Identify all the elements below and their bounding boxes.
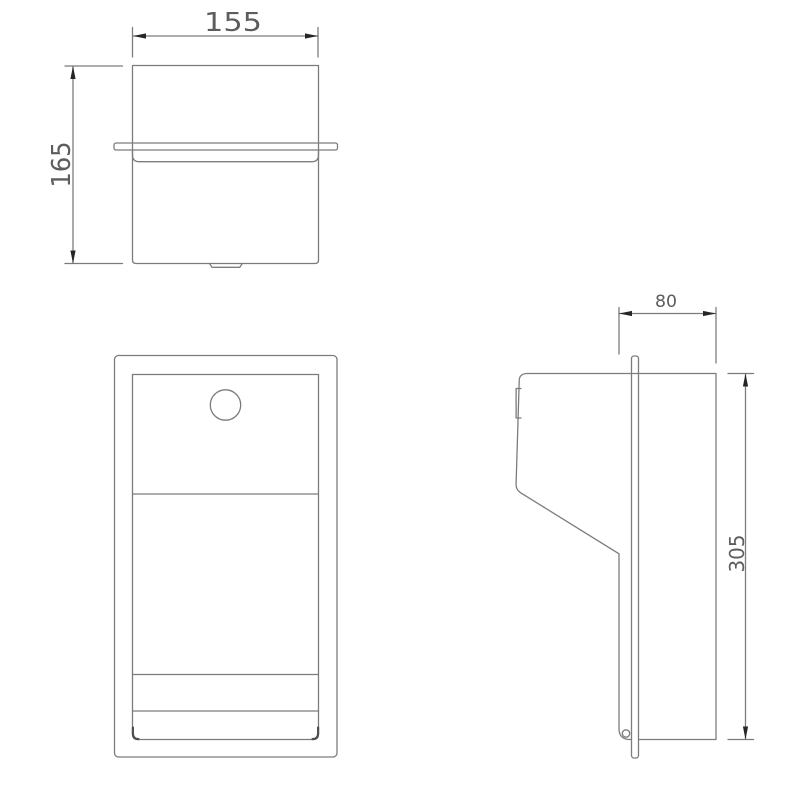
- drawing-root: 155 165 80: [47, 8, 754, 758]
- dim-165-arrow-top: [70, 66, 75, 79]
- side-view: [516, 356, 716, 758]
- top-view-front-lip: [133, 150, 319, 162]
- dim-305-arrow-bottom: [743, 727, 748, 740]
- front-view-corner-accent-left: [133, 728, 139, 740]
- dim-165-label: 165: [47, 142, 77, 188]
- dimension-height-305: 305: [725, 374, 754, 740]
- dim-155-arrow-left: [133, 33, 146, 38]
- side-view-screw: [622, 730, 629, 737]
- dimension-height-165: 165: [47, 66, 123, 264]
- side-view-body-outline: [527, 374, 716, 740]
- dim-305-label: 305: [725, 535, 749, 573]
- dim-155-label: 155: [204, 8, 262, 38]
- dim-80-label: 80: [655, 292, 677, 312]
- dim-80-arrow-right: [703, 311, 716, 316]
- dim-165-arrow-bottom: [70, 251, 75, 264]
- dimension-depth-80: 80: [619, 292, 716, 363]
- front-view-mount-plate: [115, 356, 338, 758]
- top-view: [114, 66, 338, 268]
- side-view-front-profile: [516, 374, 631, 740]
- front-view: [115, 356, 338, 758]
- dimension-width-155: 155: [133, 8, 319, 57]
- technical-drawing-canvas: 155 165 80: [0, 0, 800, 800]
- dim-80-arrow-left: [619, 311, 632, 316]
- dim-155-arrow-right: [305, 33, 318, 38]
- drawing-svg: 155 165 80: [0, 0, 800, 800]
- front-view-sensor-circle: [210, 390, 240, 420]
- front-view-corner-accent-right: [313, 728, 319, 740]
- dim-305-arrow-top: [743, 374, 748, 387]
- top-view-mount-plate: [114, 143, 338, 150]
- top-view-body-outline: [133, 66, 319, 264]
- front-view-body-outline: [133, 375, 319, 740]
- side-view-mount-plate: [632, 356, 639, 758]
